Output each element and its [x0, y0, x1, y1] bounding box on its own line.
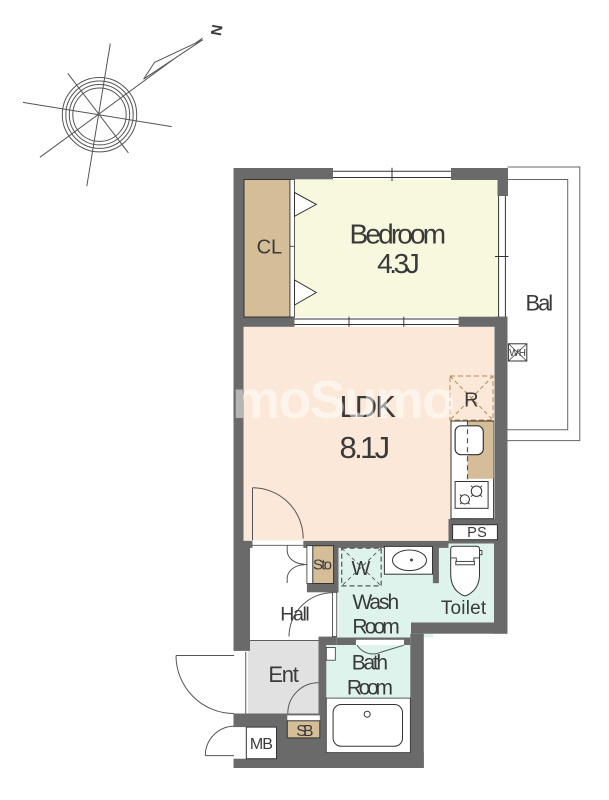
- svg-text:Hall: Hall: [280, 603, 310, 625]
- svg-text:PS: PS: [467, 525, 487, 541]
- svg-text:SB: SB: [296, 723, 313, 740]
- svg-text:Room: Room: [347, 677, 393, 700]
- svg-text:WH: WH: [509, 348, 526, 359]
- svg-text:Sto: Sto: [313, 557, 332, 574]
- svg-text:moSumo: moSumo: [232, 370, 455, 430]
- svg-text:MB: MB: [250, 736, 273, 753]
- svg-text:R: R: [464, 389, 478, 411]
- svg-text:Bal: Bal: [526, 291, 554, 316]
- svg-text:4.3J: 4.3J: [377, 248, 420, 279]
- svg-text:Bath: Bath: [352, 652, 388, 675]
- svg-text:8.1J: 8.1J: [340, 430, 391, 465]
- svg-text:W: W: [352, 558, 371, 580]
- svg-text:Ent: Ent: [268, 662, 299, 687]
- svg-text:Wash: Wash: [352, 591, 399, 614]
- svg-text:Toilet: Toilet: [441, 598, 487, 619]
- svg-text:Room: Room: [352, 616, 399, 639]
- svg-text:Bedroom: Bedroom: [350, 218, 447, 249]
- svg-text:CL: CL: [257, 237, 283, 259]
